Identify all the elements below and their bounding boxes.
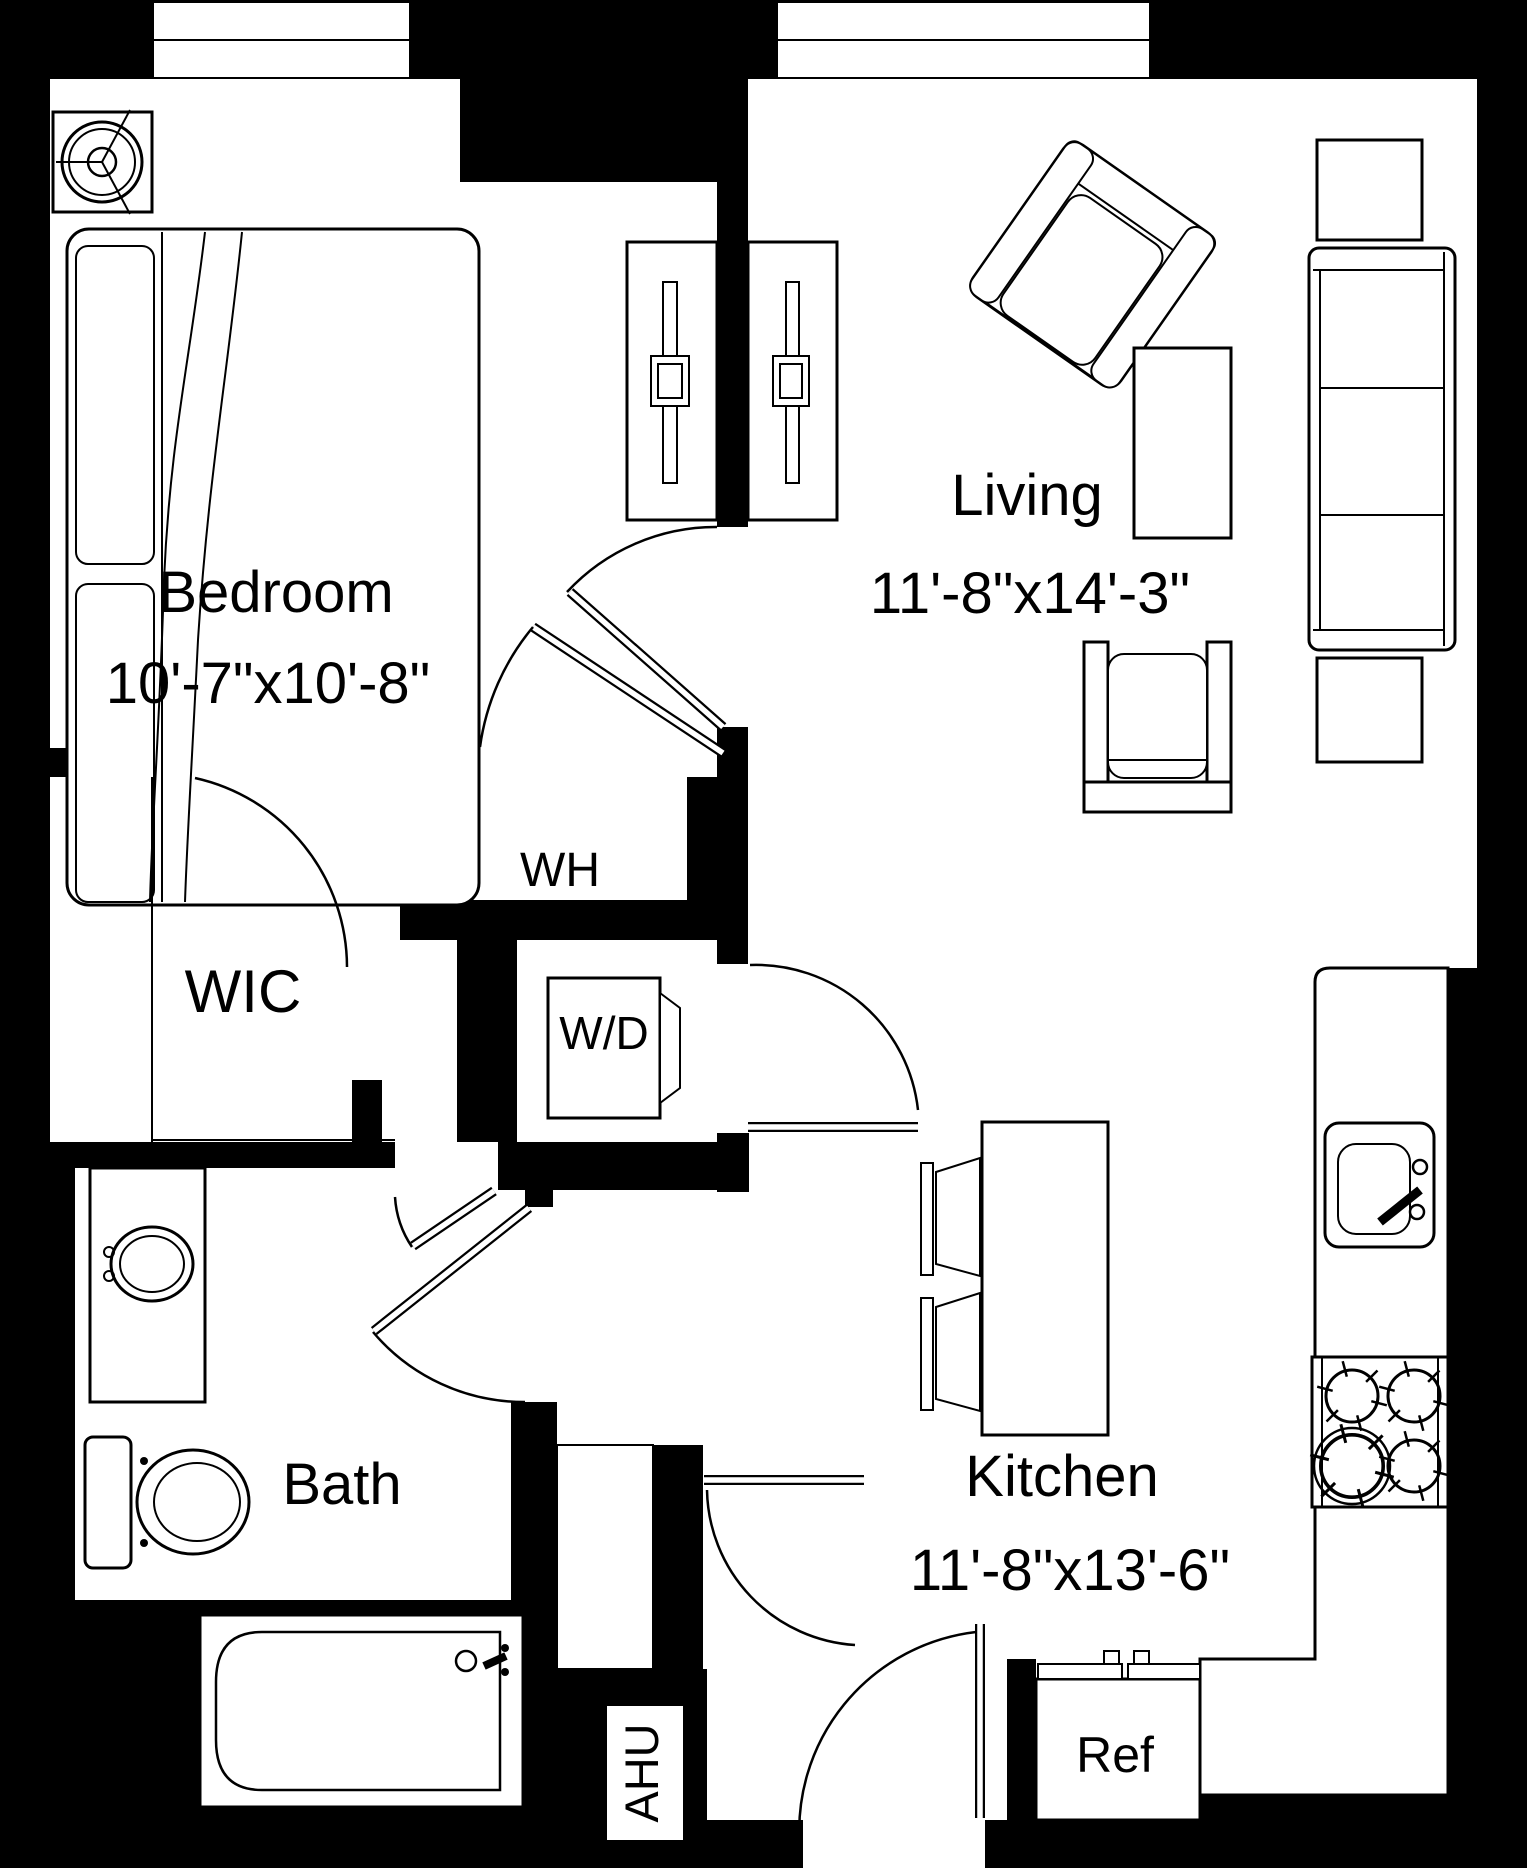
wall-segment [0, 79, 50, 1168]
toilet-bolt [140, 1539, 148, 1547]
tv-console-bedroom [627, 242, 717, 520]
sofa [1309, 248, 1455, 650]
kitchen-label: Kitchen [965, 1444, 1158, 1509]
kitchen-sink [1325, 1123, 1434, 1247]
stove [1310, 1357, 1449, 1508]
bath-label: Bath [282, 1452, 401, 1517]
coffee-table [1134, 348, 1231, 538]
stool-seat [936, 1293, 980, 1411]
ahu-label: AHU [615, 1723, 668, 1822]
stool-back [921, 1163, 933, 1275]
bedroom-label: Bedroom [158, 560, 393, 625]
wall-segment [352, 1080, 382, 1142]
wall-segment [687, 777, 717, 900]
accent-chair [1084, 642, 1231, 812]
ref-door [1128, 1664, 1200, 1679]
wall-segment [457, 940, 517, 1142]
tv-console-living [748, 242, 837, 520]
floor-plan: Bedroom 10'-7"x10'-8" Living 11'-8"x14'-… [0, 0, 1527, 1868]
end-table [1317, 658, 1422, 762]
wall-segment [1477, 79, 1527, 968]
bathtub [200, 1615, 523, 1807]
ref-door [1038, 1664, 1122, 1679]
wd-label: W/D [559, 1007, 648, 1059]
wall-segment [525, 1190, 553, 1207]
wall-segment [717, 777, 748, 964]
wh-label: WH [520, 844, 600, 897]
wall-segment [703, 1820, 803, 1868]
wall-segment [410, 0, 777, 79]
bedroom-dims: 10'-7"x10'-8" [106, 651, 431, 716]
tub-outline [200, 1615, 523, 1807]
wall-segment [717, 182, 748, 527]
wall-segment [1150, 0, 1527, 79]
stool-back [921, 1298, 933, 1410]
wall-segment [717, 1133, 749, 1192]
chair-back [1084, 782, 1231, 812]
wall-segment [1200, 1795, 1527, 1868]
ref-label: Ref [1076, 1727, 1154, 1783]
ceiling-fixture-icon [53, 110, 152, 214]
tub-knob [501, 1668, 509, 1676]
toilet-tank [85, 1437, 131, 1568]
living-dims: 11'-8"x14'-3" [870, 561, 1190, 626]
wall-segment [0, 0, 153, 79]
toilet-bolt [140, 1457, 148, 1465]
kitchen-island [982, 1122, 1108, 1435]
ref-handle [1104, 1651, 1119, 1664]
sink-basin [1338, 1144, 1410, 1234]
vanity-sink [90, 1168, 205, 1402]
wall-segment [0, 1168, 75, 1618]
end-table [1317, 140, 1422, 240]
wall-segment [1007, 1659, 1036, 1820]
tub-knob [501, 1644, 509, 1652]
sofa-outline [1309, 248, 1455, 650]
stool-seat [936, 1158, 980, 1276]
pillow [76, 584, 154, 902]
entry-threshold [803, 1820, 985, 1868]
wall-segment [1448, 968, 1527, 1820]
bar-stool [921, 1293, 980, 1411]
wic-label: WIC [185, 958, 302, 1025]
kitchen-dims: 11'-8"x13'-6" [910, 1538, 1230, 1603]
entry-alcove [557, 1445, 653, 1669]
wall-segment [50, 1142, 395, 1168]
bar-stool [921, 1158, 980, 1276]
wall-segment [498, 1142, 747, 1190]
wall-segment [653, 1445, 703, 1669]
vanity-counter [90, 1168, 205, 1402]
wall-segment [460, 79, 748, 182]
pillow [76, 246, 154, 564]
wd-door-bevel [660, 993, 680, 1103]
living-label: Living [951, 463, 1103, 528]
ref-handle [1134, 1651, 1149, 1664]
